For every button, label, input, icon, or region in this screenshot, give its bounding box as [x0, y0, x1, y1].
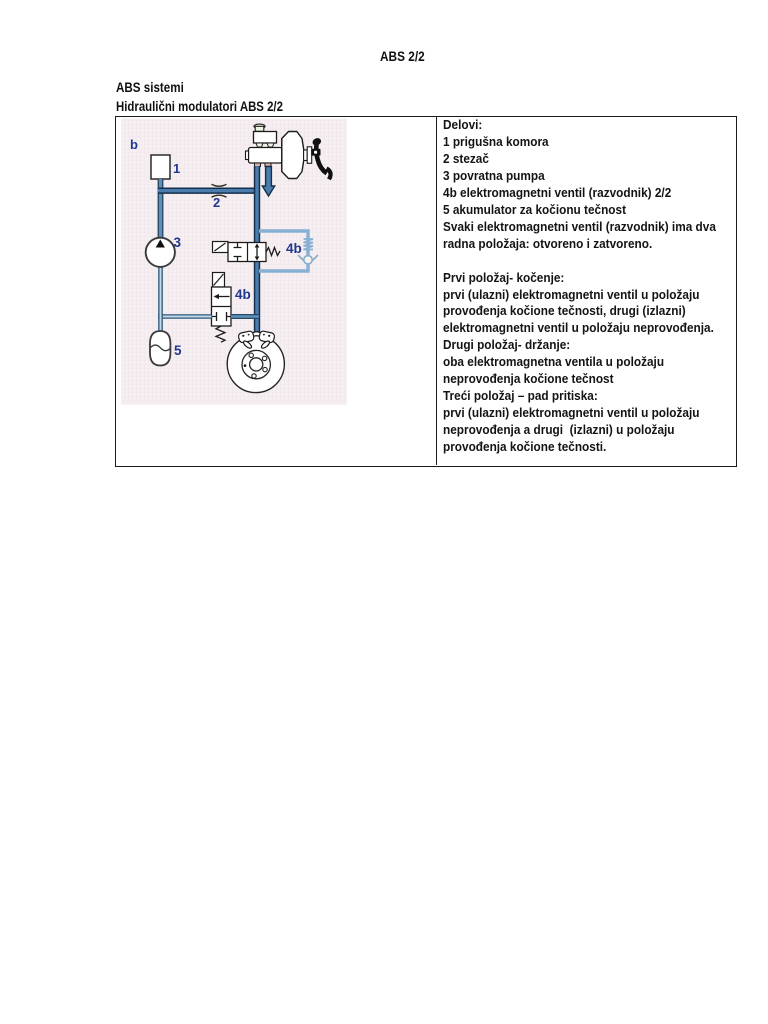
- svg-text:4b: 4b: [286, 241, 302, 256]
- svg-text:3: 3: [174, 235, 182, 250]
- svg-text:1: 1: [173, 161, 180, 176]
- svg-text:b: b: [130, 137, 138, 152]
- svg-text:5: 5: [174, 343, 182, 358]
- svg-text:2: 2: [213, 195, 220, 210]
- svg-text:4b: 4b: [235, 287, 251, 302]
